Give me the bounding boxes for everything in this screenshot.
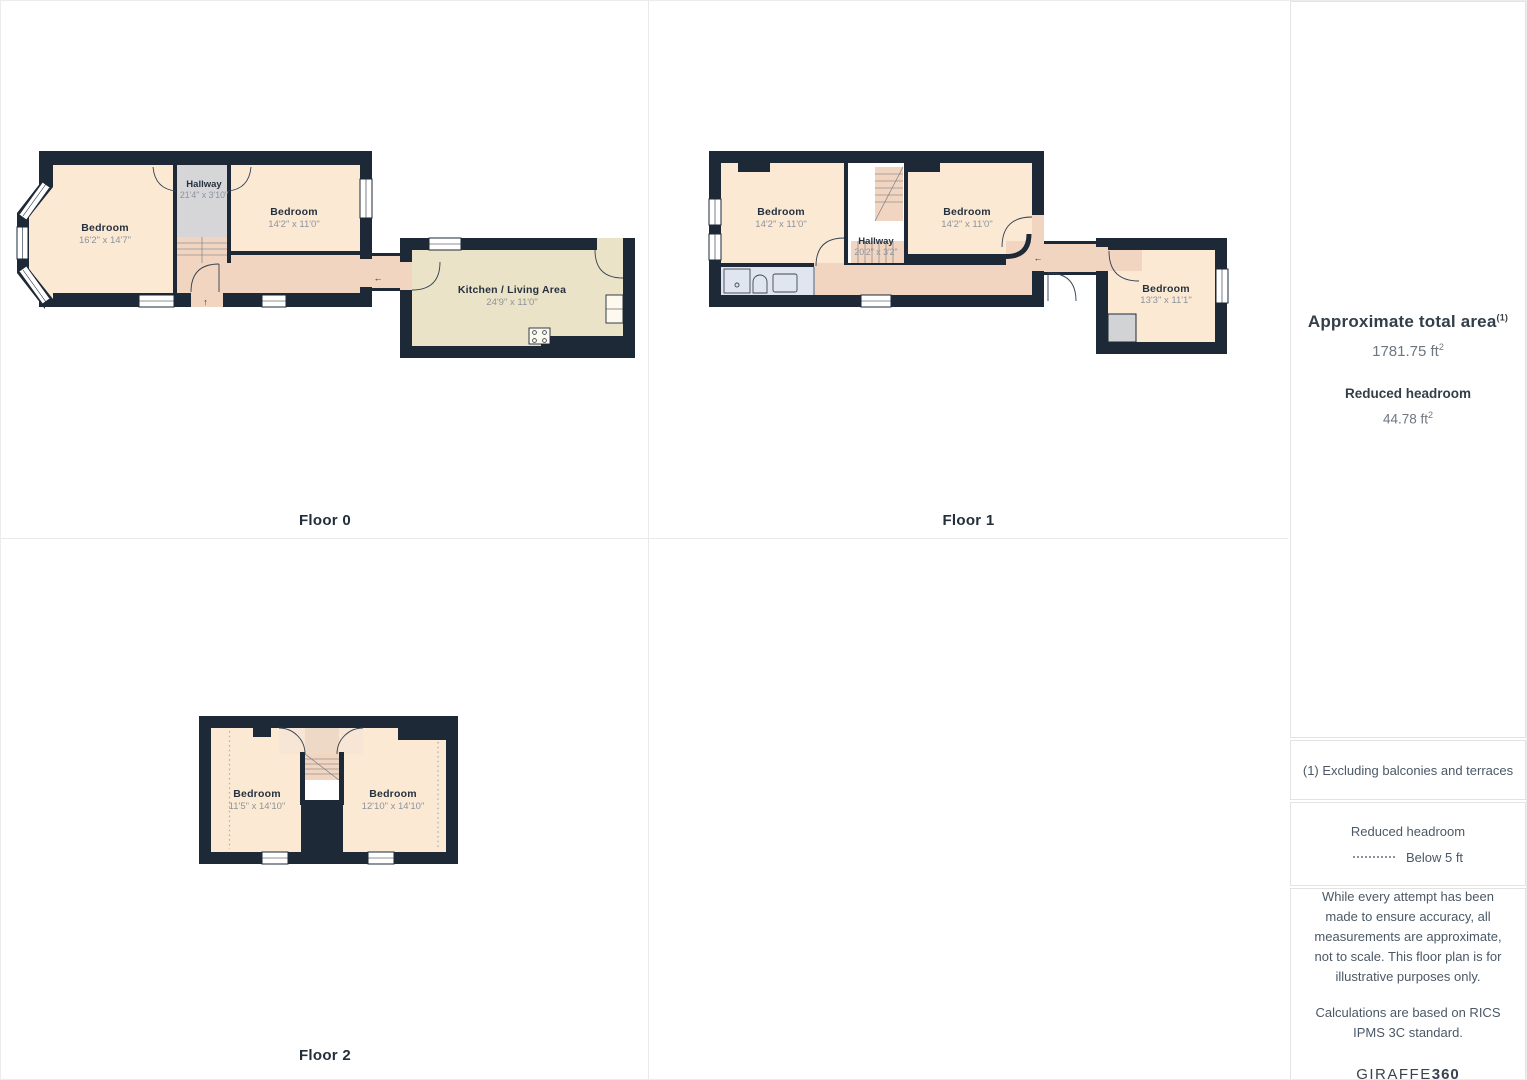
staircase <box>177 237 227 263</box>
interior-wall <box>908 254 1006 259</box>
svg-text:24'9" x 11'0": 24'9" x 11'0" <box>486 297 537 308</box>
svg-text:Bedroom: Bedroom <box>369 788 417 800</box>
footnote-marker: (1) <box>1497 313 1509 323</box>
floor-1-plan: ← Bedroom 14'2" x 11'0" Hallway 20'2" x … <box>649 1 1288 539</box>
svg-text:Bedroom: Bedroom <box>81 222 129 234</box>
stove-icon <box>529 328 550 344</box>
svg-text:Bedroom: Bedroom <box>270 206 318 218</box>
total-area-title: Approximate total area(1) <box>1308 312 1508 332</box>
svg-text:Bedroom: Bedroom <box>943 206 991 218</box>
corridor-bridge <box>1044 241 1096 275</box>
disclaimer-text: Calculations are based on RICS IPMS 3C s… <box>1305 1003 1511 1043</box>
room-label: Hallway 20'2" x 3'2" <box>854 236 897 257</box>
footnote-text: (1) Excluding balconies and terraces <box>1303 763 1513 778</box>
door-opening <box>597 238 623 250</box>
svg-text:20'2" x 3'2": 20'2" x 3'2" <box>854 247 897 257</box>
room-label: Hallway 21'4" x 3'10" <box>180 179 228 200</box>
floorplan-page: ↑ ← Bedroom 16'2" x 14'7" Hallway 21'4" … <box>0 0 1527 1080</box>
interior-wall <box>398 728 446 740</box>
door-opening <box>1096 247 1108 271</box>
disclaimer-panel: While every attempt has been made to ens… <box>1290 888 1526 1080</box>
floor-0-panel: ↑ ← Bedroom 16'2" x 14'7" Hallway 21'4" … <box>1 1 649 539</box>
floor-0-label: Floor 0 <box>1 512 649 529</box>
area-summary-panel: Approximate total area(1) 1781.75 ft2 Re… <box>1290 1 1526 738</box>
wall-notch <box>253 728 271 737</box>
door-opening <box>400 262 412 290</box>
hallway-room <box>177 165 227 237</box>
floor-0-plan: ↑ ← Bedroom 16'2" x 14'7" Hallway 21'4" … <box>1 1 649 539</box>
dotted-line-sample <box>1353 856 1395 858</box>
svg-text:14'2" x 11'0": 14'2" x 11'0" <box>268 219 319 230</box>
interior-wall <box>173 165 177 293</box>
floor-1-label: Floor 1 <box>649 512 1288 529</box>
svg-text:14'2" x 11'0": 14'2" x 11'0" <box>941 219 992 230</box>
entrance-arrow-icon: ← <box>374 273 383 283</box>
giraffe360-logo: GIRAFFE360 <box>1356 1066 1460 1080</box>
room-label: Bedroom 13'3" x 11'1" <box>1140 283 1191 306</box>
windows <box>429 238 461 250</box>
svg-text:Hallway: Hallway <box>186 179 222 190</box>
floor-2-label: Floor 2 <box>1 1047 649 1064</box>
svg-text:Bedroom: Bedroom <box>757 206 805 218</box>
legend-item-label: Below 5 ft <box>1406 850 1463 865</box>
svg-text:16'2" x 14'7": 16'2" x 14'7" <box>79 235 131 246</box>
total-area-value: 1781.75 ft2 <box>1372 342 1444 360</box>
svg-text:11'5" x 14'10": 11'5" x 14'10" <box>229 801 286 812</box>
floor-2-panel: Bedroom 11'5" x 14'10" Bedroom 12'10" x … <box>1 539 649 1080</box>
reduced-headroom-title: Reduced headroom <box>1345 386 1471 401</box>
interior-wall <box>813 267 815 295</box>
entrance-arrow-icon: ↑ <box>203 297 208 307</box>
floor-1-panel: ← Bedroom 14'2" x 11'0" Hallway 20'2" x … <box>649 1 1288 539</box>
entrance-arrow-icon: ← <box>1034 253 1043 263</box>
floor-2-plan: Bedroom 11'5" x 14'10" Bedroom 12'10" x … <box>1 539 649 1080</box>
footnote-panel: (1) Excluding balconies and terraces <box>1290 740 1526 800</box>
svg-text:13'3" x 11'1": 13'3" x 11'1" <box>1140 295 1191 306</box>
door-opening <box>814 263 844 267</box>
svg-text:21'4" x 3'10": 21'4" x 3'10" <box>180 190 228 200</box>
interior-wall <box>231 251 360 255</box>
empty-panel <box>649 539 1288 1080</box>
reduced-headroom-value: 44.78 ft2 <box>1383 410 1433 427</box>
legend-title: Reduced headroom <box>1351 824 1465 839</box>
interior-wall <box>227 165 231 237</box>
svg-text:12'10" x 14'10": 12'10" x 14'10" <box>362 801 425 812</box>
svg-text:Bedroom: Bedroom <box>1142 283 1190 295</box>
windows <box>1216 269 1228 303</box>
corridor-floor <box>1108 250 1142 271</box>
legend-row: Below 5 ft <box>1353 850 1463 865</box>
svg-text:Bedroom: Bedroom <box>233 788 281 800</box>
svg-text:Kitchen / Living Area: Kitchen / Living Area <box>458 284 566 296</box>
closet <box>1108 314 1136 342</box>
interior-wall <box>541 336 623 346</box>
disclaimer-text: While every attempt has been made to ens… <box>1305 887 1511 988</box>
svg-text:14'2" x 11'0": 14'2" x 11'0" <box>755 219 806 230</box>
svg-text:Hallway: Hallway <box>858 236 894 247</box>
counter <box>606 295 623 323</box>
legend-panel: Reduced headroom Below 5 ft <box>1290 802 1526 886</box>
